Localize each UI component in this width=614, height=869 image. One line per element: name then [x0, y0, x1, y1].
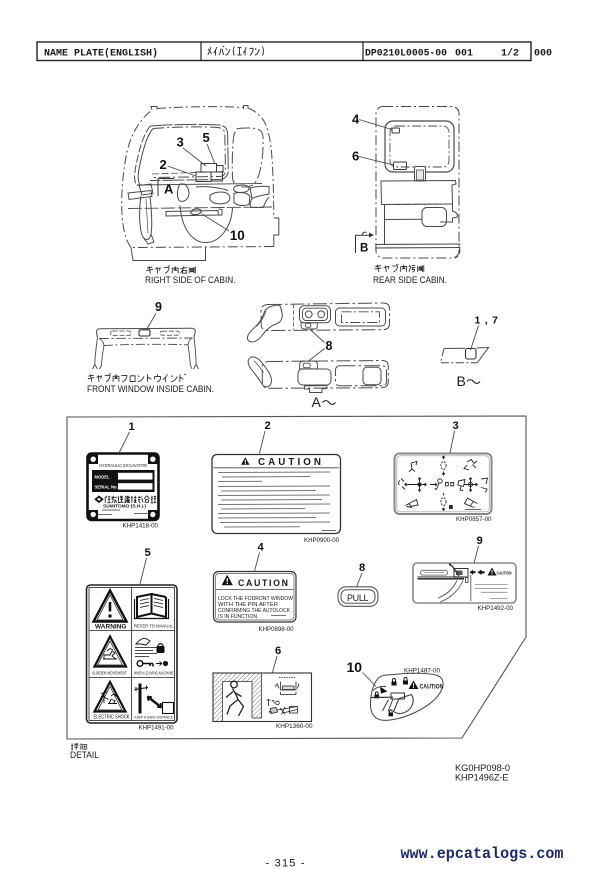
svg-text:MODEL: MODEL: [95, 475, 111, 480]
svg-text:KHP1360-00: KHP1360-00: [276, 723, 313, 730]
svg-text:DETAIL: DETAIL: [70, 750, 99, 761]
svg-text:KHP0857-00: KHP0857-00: [456, 516, 492, 523]
svg-text:FRONT WINDOW INSIDE CABIN.: FRONT WINDOW INSIDE CABIN.: [87, 384, 214, 395]
svg-text:CAUTION: CAUTION: [420, 684, 444, 691]
svg-text:8: 8: [326, 339, 333, 353]
svg-text:001: 001: [455, 49, 473, 60]
svg-text:DP0210L0005-00: DP0210L0005-00: [365, 49, 447, 60]
svg-text:1 , 7: 1 , 7: [475, 315, 499, 327]
svg-text:2: 2: [265, 420, 271, 432]
svg-text:ELECTRIC SHOCK: ELECTRIC SHOCK: [94, 715, 130, 721]
svg-text:1: 1: [129, 421, 135, 433]
svg-text:NAME PLATE(ENGLISH): NAME PLATE(ENGLISH): [44, 48, 158, 60]
svg-text:B: B: [360, 243, 368, 255]
svg-text:5: 5: [203, 130, 210, 145]
svg-text:1/2: 1/2: [501, 48, 519, 60]
svg-text:www.epcatalogs.com: www.epcatalogs.com: [401, 845, 564, 863]
svg-text:KEEP A SAFE DISTANCE: KEEP A SAFE DISTANCE: [135, 715, 174, 720]
svg-text:REAR SIDE CABIN.: REAR SIDE CABIN.: [373, 275, 447, 286]
svg-text:4: 4: [258, 542, 265, 554]
svg-text:IS IN FUNCTION: IS IN FUNCTION: [218, 614, 257, 620]
svg-text:KHP1418-00: KHP1418-00: [123, 523, 159, 530]
svg-text:RIGHT SIDE OF CABIN.: RIGHT SIDE OF CABIN.: [145, 275, 236, 286]
svg-text:6: 6: [352, 149, 359, 164]
svg-text:WHEN LEAVING MACHINE: WHEN LEAVING MACHINE: [134, 671, 174, 676]
svg-text:9: 9: [155, 300, 162, 314]
svg-text:SERIAL No.: SERIAL No.: [95, 485, 118, 490]
svg-text:SUMITOMO (S.H.I.): SUMITOMO (S.H.I.): [103, 504, 147, 509]
svg-text:6: 6: [275, 645, 281, 657]
svg-text:9: 9: [477, 535, 483, 547]
svg-text:REFER TO MANUAL: REFER TO MANUAL: [134, 624, 174, 630]
svg-text:3: 3: [453, 420, 459, 432]
svg-text:PULL: PULL: [347, 593, 369, 603]
svg-text:A: A: [312, 394, 322, 410]
svg-text:- 315 -: - 315 -: [266, 858, 305, 869]
svg-text:10: 10: [230, 228, 245, 243]
svg-text:B: B: [457, 373, 466, 389]
svg-text:3: 3: [177, 135, 184, 150]
svg-text:KHP1492-00: KHP1492-00: [478, 605, 514, 612]
svg-text:000: 000: [534, 49, 552, 60]
svg-text:KHP0900-00: KHP0900-00: [304, 537, 339, 544]
svg-text:10: 10: [347, 659, 363, 675]
svg-text:HYDRAULIC EXCAVATOR: HYDRAULIC EXCAVATOR: [99, 463, 148, 468]
svg-text:A: A: [164, 182, 174, 197]
svg-text:5: 5: [145, 547, 151, 559]
svg-text:WARNING: WARNING: [95, 624, 127, 631]
svg-text:CAUTION: CAUTION: [497, 571, 512, 577]
svg-text:KHP1491-00: KHP1491-00: [139, 725, 174, 732]
svg-text:2: 2: [160, 157, 167, 172]
svg-text:KHP1496Z-E: KHP1496Z-E: [455, 773, 509, 784]
svg-text:KHP0898-00: KHP0898-00: [259, 626, 294, 633]
svg-text:SUDDEN MOVEMENT: SUDDEN MOVEMENT: [92, 671, 127, 676]
svg-text:8: 8: [359, 562, 365, 574]
svg-text:4: 4: [352, 112, 360, 127]
